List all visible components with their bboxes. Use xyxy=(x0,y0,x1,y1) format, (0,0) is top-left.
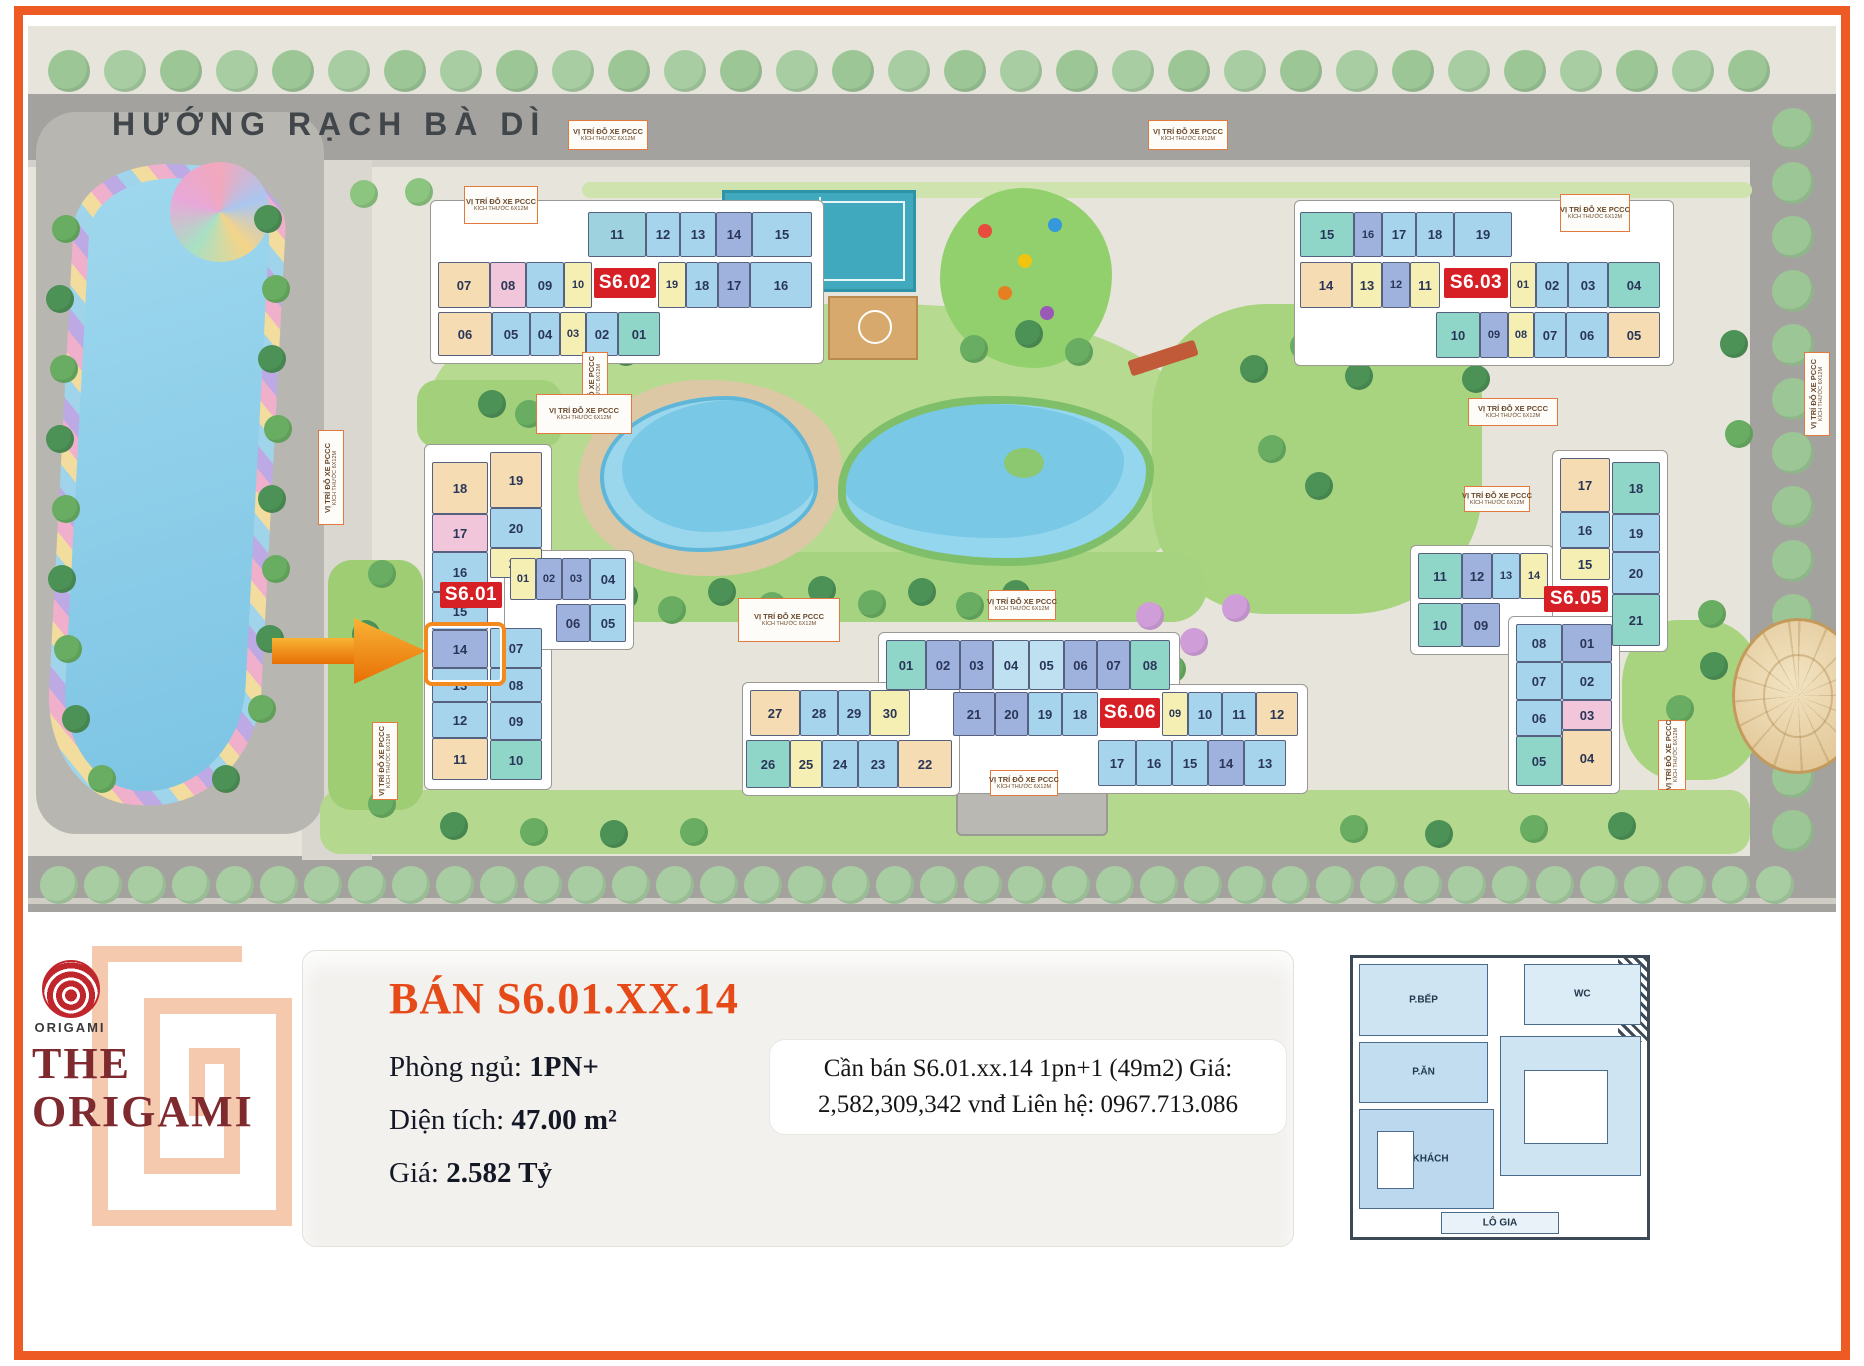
unit-cell-S6.05-19[interactable]: 19 xyxy=(1612,514,1660,552)
park-tree xyxy=(600,820,628,848)
park-tree xyxy=(1698,600,1726,628)
street-tree xyxy=(944,50,986,92)
street-tree xyxy=(1624,866,1662,904)
listing-fields: Phòng ngủ: 1PN+ Diện tích: 47.00 m² Giá:… xyxy=(389,1051,617,1210)
unit-cell-S6.05-13[interactable]: 13 xyxy=(1492,553,1520,599)
lake-water xyxy=(60,174,272,797)
unit-cell-S6.01-04[interactable]: 04 xyxy=(590,558,626,600)
park-tree xyxy=(1425,820,1453,848)
unit-cell-S6.06-30[interactable]: 30 xyxy=(870,690,910,736)
pccc-parking-label: VỊ TRÍ ĐỖ XE PCCCKÍCH THƯỚC 6X12M xyxy=(466,197,536,213)
callout-line1: Cần bán S6.01.xx.14 1pn+1 (49m2) Giá: xyxy=(824,1051,1233,1087)
street-tree xyxy=(496,50,538,92)
unit-cell-S6.01-09[interactable]: 09 xyxy=(490,702,542,740)
street-tree xyxy=(1756,866,1794,904)
street-tree xyxy=(1772,162,1814,204)
street-tree xyxy=(552,50,594,92)
unit-cell-S6.06-01[interactable]: 01 xyxy=(886,640,926,690)
street-tree xyxy=(832,50,874,92)
street-tree xyxy=(612,866,650,904)
street-tree xyxy=(1772,540,1814,582)
unit-cell-S6.02-04[interactable]: 04 xyxy=(530,312,560,356)
pccc-parking-label: VỊ TRÍ ĐỖ XE PCCCKÍCH THƯỚC 6X12M xyxy=(987,597,1057,613)
playground-equipment xyxy=(1048,218,1062,232)
park-tree xyxy=(1065,338,1093,366)
park-tree xyxy=(1136,602,1164,630)
street-tree xyxy=(568,866,606,904)
street-tree xyxy=(216,50,258,92)
playground-equipment xyxy=(998,286,1012,300)
unit-cell-S6.06-18[interactable]: 18 xyxy=(1062,692,1098,736)
unit-cell-S6.05-11[interactable]: 11 xyxy=(1418,553,1462,599)
unit-cell-S6.03-15[interactable]: 15 xyxy=(1300,212,1354,257)
street-tree xyxy=(1280,50,1322,92)
unit-cell-S6.06-11[interactable]: 11 xyxy=(1222,692,1256,736)
unit-cell-S6.03-11[interactable]: 11 xyxy=(1410,262,1440,308)
unit-floor-plan: P.BẾP WC P.ĂN P.NGỦ P.KHÁCH LÔ GIA xyxy=(1350,955,1650,1240)
lagoon-green-rim xyxy=(838,396,1154,566)
street-tree xyxy=(440,50,482,92)
unit-cell-S6.05-07[interactable]: 07 xyxy=(1516,662,1562,700)
park-tree xyxy=(52,215,80,243)
unit-cell-S6.03-06[interactable]: 06 xyxy=(1566,312,1608,358)
park-tree xyxy=(960,335,988,363)
park-tree xyxy=(254,205,282,233)
unit-cell-S6.06-27[interactable]: 27 xyxy=(750,690,800,736)
pccc-parking-box: VỊ TRÍ ĐỖ XE PCCCKÍCH THƯỚC 6X12M xyxy=(1148,120,1228,150)
street-tree xyxy=(1140,866,1178,904)
pccc-parking-box: VỊ TRÍ ĐỖ XE PCCCKÍCH THƯỚC 6X12M xyxy=(1658,720,1686,790)
listing-panel: BÁN S6.01.XX.14 Phòng ngủ: 1PN+ Diện tíc… xyxy=(302,950,1294,1247)
park-tree xyxy=(50,355,78,383)
street-tree xyxy=(1712,866,1750,904)
street-tree xyxy=(1668,866,1706,904)
pccc-parking-label: VỊ TRÍ ĐỖ XE PCCCKÍCH THƯỚC 6X12M xyxy=(1560,205,1630,221)
unit-cell-S6.06-28[interactable]: 28 xyxy=(800,690,838,736)
street-tree xyxy=(1772,108,1814,150)
street-tree xyxy=(128,866,166,904)
park-tree xyxy=(52,495,80,523)
unit-cell-S6.06-02[interactable]: 02 xyxy=(926,640,960,690)
street-tree xyxy=(1000,50,1042,92)
unit-cell-S6.05-06[interactable]: 06 xyxy=(1516,700,1562,736)
unit-cell-S6.01-10[interactable]: 10 xyxy=(490,740,542,780)
unit-cell-S6.06-16[interactable]: 16 xyxy=(1136,740,1172,786)
street-tree xyxy=(260,866,298,904)
unit-cell-S6.06-22[interactable]: 22 xyxy=(898,740,952,788)
street-tree xyxy=(920,866,958,904)
street-tree xyxy=(1448,50,1490,92)
unit-cell-S6.05-03[interactable]: 03 xyxy=(1562,700,1612,730)
unit-cell-S6.02-19[interactable]: 19 xyxy=(658,262,686,308)
unit-cell-S6.02-09[interactable]: 09 xyxy=(526,262,564,308)
unit-cell-S6.05-10[interactable]: 10 xyxy=(1418,603,1462,647)
street-tree xyxy=(788,866,826,904)
street-tree xyxy=(480,866,518,904)
unit-cell-S6.06-04[interactable]: 04 xyxy=(993,640,1029,690)
unit-cell-S6.06-21[interactable]: 21 xyxy=(953,692,995,736)
unit-cell-S6.05-16[interactable]: 16 xyxy=(1560,512,1610,548)
unit-cell-S6.06-24[interactable]: 24 xyxy=(822,740,858,788)
park-tree xyxy=(440,812,468,840)
unit-cell-S6.06-07[interactable]: 07 xyxy=(1097,640,1130,690)
logo-line-origami: ORIGAMI xyxy=(32,1088,254,1136)
street-tree xyxy=(1052,866,1090,904)
pccc-parking-label: VỊ TRÍ ĐỖ XE PCCCKÍCH THƯỚC 6X12M xyxy=(323,442,339,512)
pccc-parking-label: VỊ TRÍ ĐỖ XE PCCCKÍCH THƯỚC 6X12M xyxy=(1478,404,1548,420)
street-tree xyxy=(1772,216,1814,258)
unit-cell-S6.06-09[interactable]: 09 xyxy=(1162,692,1188,736)
street-tree xyxy=(40,866,78,904)
unit-cell-S6.02-15[interactable]: 15 xyxy=(752,212,812,257)
unit-cell-S6.06-14[interactable]: 14 xyxy=(1208,740,1244,786)
pccc-parking-label: VỊ TRÍ ĐỖ XE PCCCKÍCH THƯỚC 6X12M xyxy=(754,612,824,628)
street-tree xyxy=(1008,866,1046,904)
unit-cell-S6.01-17[interactable]: 17 xyxy=(432,514,488,552)
street-tree xyxy=(392,866,430,904)
unit-cell-S6.06-12[interactable]: 12 xyxy=(1256,692,1298,736)
unit-cell-S6.03-17[interactable]: 17 xyxy=(1382,212,1416,257)
unit-cell-S6.05-15[interactable]: 15 xyxy=(1560,548,1610,580)
room-balcony-label: LÔ GIA xyxy=(1483,1218,1517,1229)
unit-cell-S6.02-11[interactable]: 11 xyxy=(588,212,646,257)
street-tree xyxy=(384,50,426,92)
field-area: Diện tích: 47.00 m² xyxy=(389,1104,617,1137)
street-tree xyxy=(1536,866,1574,904)
unit-cell-S6.06-13[interactable]: 13 xyxy=(1244,740,1286,786)
unit-cell-S6.02-06[interactable]: 06 xyxy=(438,312,492,356)
pccc-parking-box: VỊ TRÍ ĐỖ XE PCCCKÍCH THƯỚC 6X12M xyxy=(536,394,632,434)
unit-cell-S6.03-02[interactable]: 02 xyxy=(1536,262,1568,308)
unit-cell-S6.05-04[interactable]: 04 xyxy=(1562,730,1612,786)
street-tree xyxy=(48,50,90,92)
origami-circle-icon xyxy=(42,960,100,1018)
pccc-parking-box: VỊ TRÍ ĐỖ XE PCCCKÍCH THƯỚC 6X12M xyxy=(1804,352,1830,436)
park-tree xyxy=(520,818,548,846)
unit-cell-S6.02-16[interactable]: 16 xyxy=(750,262,812,308)
park-tree xyxy=(1305,472,1333,500)
bed-icon xyxy=(1524,1070,1608,1145)
street-tree xyxy=(744,866,782,904)
playground-equipment xyxy=(1040,306,1054,320)
street-tree xyxy=(1448,866,1486,904)
street-tree xyxy=(1580,866,1618,904)
park-tree xyxy=(1520,815,1548,843)
park-tree xyxy=(478,390,506,418)
pccc-parking-box: VỊ TRÍ ĐỖ XE PCCCKÍCH THƯỚC 6X12M xyxy=(738,598,840,642)
unit-cell-S6.03-10[interactable]: 10 xyxy=(1436,312,1480,358)
unit-cell-S6.03-07[interactable]: 07 xyxy=(1534,312,1566,358)
unit-cell-S6.02-05[interactable]: 05 xyxy=(492,312,530,356)
pccc-parking-box: VỊ TRÍ ĐỖ XE PCCCKÍCH THƯỚC 6X12M xyxy=(990,770,1058,796)
street-tree xyxy=(1772,432,1814,474)
room-dining: P.ĂN xyxy=(1359,1042,1488,1103)
site-plan-map: HƯỚNG RẠCH BÀ DÌ 11121314 xyxy=(28,26,1836,938)
unit-cell-S6.06-15[interactable]: 15 xyxy=(1172,740,1208,786)
unit-cell-S6.01-18[interactable]: 18 xyxy=(432,462,488,514)
unit-cell-S6.02-08[interactable]: 08 xyxy=(490,262,526,308)
field-bedrooms-value: 1PN+ xyxy=(529,1051,599,1083)
sofa-icon xyxy=(1377,1131,1414,1189)
unit-cell-S6.02-12[interactable]: 12 xyxy=(646,212,680,257)
street-tree xyxy=(664,50,706,92)
unit-cell-S6.01-20[interactable]: 20 xyxy=(490,508,542,548)
unit-cell-S6.01-06[interactable]: 06 xyxy=(556,604,590,642)
unit-cell-S6.02-14[interactable]: 14 xyxy=(716,212,752,257)
field-price-value: 2.582 Tỷ xyxy=(446,1157,552,1189)
street-tree xyxy=(1392,50,1434,92)
park-tree xyxy=(264,415,292,443)
pccc-parking-label: VỊ TRÍ ĐỖ XE PCCCKÍCH THƯỚC 6X12M xyxy=(549,406,619,422)
park-tree xyxy=(368,560,396,588)
room-balcony: LÔ GIA xyxy=(1441,1212,1559,1234)
street-tree xyxy=(1404,866,1442,904)
park-tree xyxy=(1015,320,1043,348)
unit-cell-S6.02-07[interactable]: 07 xyxy=(438,262,490,308)
unit-cell-S6.05-05[interactable]: 05 xyxy=(1516,736,1562,786)
pointer-arrow xyxy=(272,638,366,664)
unit-cell-S6.06-06[interactable]: 06 xyxy=(1064,640,1097,690)
pccc-parking-box: VỊ TRÍ ĐỖ XE PCCCKÍCH THƯỚC 6X12M xyxy=(318,430,344,525)
park-tree xyxy=(1462,365,1490,393)
unit-cell-S6.05-20[interactable]: 20 xyxy=(1612,552,1660,594)
callout-line2: 2,582,309,342 vnđ Liên hệ: 0967.713.086 xyxy=(818,1087,1238,1123)
unit-cell-S6.02-02[interactable]: 02 xyxy=(586,312,618,356)
park-tree xyxy=(956,592,984,620)
logo-line-the: THE xyxy=(32,1040,254,1088)
unit-cell-S6.01-05[interactable]: 05 xyxy=(590,604,626,642)
room-dining-label: P.ĂN xyxy=(1412,1067,1435,1078)
unit-cell-S6.05-18[interactable]: 18 xyxy=(1612,462,1660,514)
park-tree xyxy=(212,765,240,793)
park-tree xyxy=(54,635,82,663)
pccc-parking-box: VỊ TRÍ ĐỖ XE PCCCKÍCH THƯỚC 6X12M xyxy=(464,186,538,224)
unit-cell-S6.02-10[interactable]: 10 xyxy=(564,262,592,308)
unit-cell-S6.03-16[interactable]: 16 xyxy=(1354,212,1382,257)
park-tree xyxy=(350,180,378,208)
unit-cell-S6.05-21[interactable]: 21 xyxy=(1612,594,1660,646)
contact-callout: Cần bán S6.01.xx.14 1pn+1 (49m2) Giá: 2,… xyxy=(769,1039,1287,1135)
unit-cell-S6.03-01[interactable]: 01 xyxy=(1510,262,1536,308)
street-tree xyxy=(84,866,122,904)
park-tree xyxy=(1180,628,1208,656)
park-tree xyxy=(1700,652,1728,680)
field-bedrooms: Phòng ngủ: 1PN+ xyxy=(389,1051,617,1084)
street-tree xyxy=(348,866,386,904)
park-tree xyxy=(858,590,886,618)
unit-cell-S6.03-08[interactable]: 08 xyxy=(1508,312,1534,358)
park-tree xyxy=(48,565,76,593)
street-tree xyxy=(1316,866,1354,904)
unit-cell-S6.01-12[interactable]: 12 xyxy=(432,702,488,738)
unit-cell-S6.06-10[interactable]: 10 xyxy=(1188,692,1222,736)
screenshot-root: HƯỚNG RẠCH BÀ DÌ 11121314 xyxy=(0,0,1864,1366)
street-tree xyxy=(888,50,930,92)
unit-cell-S6.05-17[interactable]: 17 xyxy=(1560,458,1610,512)
street-tree xyxy=(1228,866,1266,904)
pccc-parking-box: VỊ TRÍ ĐỖ XE PCCCKÍCH THƯỚC 6X12M xyxy=(1468,398,1558,426)
unit-cell-S6.03-12[interactable]: 12 xyxy=(1382,262,1410,308)
park-tree xyxy=(258,485,286,513)
street-tree xyxy=(700,866,738,904)
park-tree xyxy=(1345,362,1373,390)
unit-cell-S6.06-17[interactable]: 17 xyxy=(1098,740,1136,786)
park-tree xyxy=(46,285,74,313)
pccc-parking-label: VỊ TRÍ ĐỖ XE PCCCKÍCH THƯỚC 6X12M xyxy=(1462,491,1532,507)
pccc-parking-label: VỊ TRÍ ĐỖ XE PCCCKÍCH THƯỚC 6X12M xyxy=(1809,359,1825,429)
unit-cell-S6.06-03[interactable]: 03 xyxy=(960,640,993,690)
street-tree xyxy=(104,50,146,92)
pccc-parking-box: VỊ TRÍ ĐỖ XE PCCCKÍCH THƯỚC 6X12M xyxy=(1464,486,1530,512)
building-label-S6.06: S6.06 xyxy=(1100,698,1160,728)
unit-cell-S6.03-04[interactable]: 04 xyxy=(1608,262,1660,308)
park-tree xyxy=(248,695,276,723)
unit-cell-S6.06-29[interactable]: 29 xyxy=(838,690,870,736)
logo-wordmark: THE ORIGAMI xyxy=(32,1040,254,1135)
listing-title: BÁN S6.01.XX.14 xyxy=(389,973,739,1024)
street-tree xyxy=(1096,866,1134,904)
unit-cell-S6.03-18[interactable]: 18 xyxy=(1416,212,1454,257)
park-tree xyxy=(46,425,74,453)
street-tree xyxy=(1504,50,1546,92)
unit-cell-S6.05-09[interactable]: 09 xyxy=(1462,603,1500,647)
street-tree xyxy=(1560,50,1602,92)
unit-cell-S6.06-05[interactable]: 05 xyxy=(1029,640,1064,690)
unit-cell-S6.06-20[interactable]: 20 xyxy=(995,692,1028,736)
street-tree xyxy=(608,50,650,92)
unit-cell-S6.02-01[interactable]: 01 xyxy=(618,312,660,356)
street-tree xyxy=(1360,866,1398,904)
room-kitchen-label: P.BẾP xyxy=(1409,994,1438,1005)
building-label-S6.05: S6.05 xyxy=(1544,586,1608,612)
room-wc: WC xyxy=(1524,964,1642,1025)
street-tree xyxy=(1184,866,1222,904)
street-tree xyxy=(720,50,762,92)
pccc-parking-box: VỊ TRÍ ĐỖ XE PCCCKÍCH THƯỚC 6X12M xyxy=(568,120,648,150)
unit-cell-S6.03-14[interactable]: 14 xyxy=(1300,262,1352,308)
unit-cell-S6.02-13[interactable]: 13 xyxy=(680,212,716,257)
unit-cell-S6.05-02[interactable]: 02 xyxy=(1562,662,1612,700)
playground-equipment xyxy=(978,224,992,238)
park-tree xyxy=(1608,812,1636,840)
room-kitchen: P.BẾP xyxy=(1359,964,1488,1037)
logo-small-label: ORIGAMI xyxy=(18,1020,122,1035)
unit-cell-S6.01-19[interactable]: 19 xyxy=(490,452,542,508)
street-tree xyxy=(1224,50,1266,92)
street-tree xyxy=(1672,50,1714,92)
street-tree xyxy=(216,866,254,904)
street-tree xyxy=(1272,866,1310,904)
unit-cell-S6.01-03[interactable]: 03 xyxy=(562,558,590,600)
unit-cell-S6.01-02[interactable]: 02 xyxy=(536,558,562,600)
pccc-parking-label: VỊ TRÍ ĐỖ XE PCCCKÍCH THƯỚC 6X12M xyxy=(989,775,1059,791)
street-tree xyxy=(1772,270,1814,312)
park-tree xyxy=(1340,815,1368,843)
park-tree xyxy=(1222,594,1250,622)
playground-equipment xyxy=(1018,254,1032,268)
unit-cell-S6.02-17[interactable]: 17 xyxy=(718,262,750,308)
unit-cell-S6.02-03[interactable]: 03 xyxy=(560,312,586,356)
park-tree xyxy=(405,178,433,206)
unit-cell-S6.03-03[interactable]: 03 xyxy=(1568,262,1608,308)
park-tree xyxy=(1240,355,1268,383)
unit-cell-S6.05-08[interactable]: 08 xyxy=(1516,624,1562,662)
street-tree xyxy=(436,866,474,904)
building-label-S6.02: S6.02 xyxy=(594,268,656,298)
pccc-parking-box: VỊ TRÍ ĐỖ XE PCCCKÍCH THƯỚC 6X12M xyxy=(372,722,398,800)
park-tree xyxy=(680,818,708,846)
lagoon-island xyxy=(1004,448,1044,478)
building-label-S6.01: S6.01 xyxy=(440,582,502,608)
park-tree xyxy=(262,555,290,583)
street-tree xyxy=(524,866,562,904)
unit-cell-S6.01-11[interactable]: 11 xyxy=(432,738,488,780)
park-tree xyxy=(258,345,286,373)
unit-cell-S6.03-09[interactable]: 09 xyxy=(1480,312,1508,358)
park-tree xyxy=(88,765,116,793)
park-tree xyxy=(262,275,290,303)
unit-cell-S6.06-08[interactable]: 08 xyxy=(1130,640,1170,690)
unit-cell-S6.02-18[interactable]: 18 xyxy=(686,262,718,308)
unit-cell-S6.03-05[interactable]: 05 xyxy=(1608,312,1660,358)
park-tree xyxy=(658,596,686,624)
street-tree xyxy=(1772,810,1814,852)
unit-cell-S6.01-01[interactable]: 01 xyxy=(510,558,536,600)
unit-cell-S6.06-26[interactable]: 26 xyxy=(746,740,790,788)
street-tree xyxy=(1168,50,1210,92)
map-title: HƯỚNG RẠCH BÀ DÌ xyxy=(112,106,546,143)
field-price: Giá: 2.582 Tỷ xyxy=(389,1157,617,1190)
room-wc-label: WC xyxy=(1574,989,1591,1000)
pccc-parking-box: VỊ TRÍ ĐỖ XE PCCCKÍCH THƯỚC 6X12M xyxy=(988,590,1056,620)
unit-cell-S6.05-01[interactable]: 01 xyxy=(1562,624,1612,662)
unit-cell-S6.06-19[interactable]: 19 xyxy=(1028,692,1062,736)
street-tree xyxy=(328,50,370,92)
park-tree xyxy=(1720,330,1748,358)
lagoon-east xyxy=(846,404,1146,558)
street-tree xyxy=(1728,50,1770,92)
unit-cell-S6.03-19[interactable]: 19 xyxy=(1454,212,1512,257)
street-tree xyxy=(876,866,914,904)
listing-info-section: ORIGAMI THE ORIGAMI BÁN S6.01.XX.14 Phòn… xyxy=(0,912,1864,1366)
street-tree xyxy=(304,866,342,904)
basketball-court xyxy=(828,296,918,360)
street-tree xyxy=(832,866,870,904)
street-tree xyxy=(1492,866,1530,904)
street-tree xyxy=(1616,50,1658,92)
unit-cell-S6.05-12[interactable]: 12 xyxy=(1462,553,1492,599)
street-tree xyxy=(160,50,202,92)
street-tree xyxy=(964,866,1002,904)
highlighted-unit-ring xyxy=(424,622,506,686)
street-tree xyxy=(1772,486,1814,528)
field-bedrooms-label: Phòng ngủ: xyxy=(389,1051,529,1083)
park-tree xyxy=(62,705,90,733)
unit-cell-S6.03-13[interactable]: 13 xyxy=(1352,262,1382,308)
pccc-parking-label: VỊ TRÍ ĐỖ XE PCCCKÍCH THƯỚC 6X12M xyxy=(573,127,643,143)
street-tree xyxy=(1336,50,1378,92)
field-price-label: Giá: xyxy=(389,1157,446,1189)
street-tree xyxy=(776,50,818,92)
street-tree xyxy=(172,866,210,904)
pccc-parking-label: VỊ TRÍ ĐỖ XE PCCCKÍCH THƯỚC 6X12M xyxy=(377,726,393,796)
street-tree xyxy=(1056,50,1098,92)
building-label-S6.03: S6.03 xyxy=(1444,268,1508,298)
field-area-value: 47.00 m² xyxy=(511,1104,616,1136)
field-area-label: Diện tích: xyxy=(389,1104,511,1136)
unit-cell-S6.06-25[interactable]: 25 xyxy=(790,740,822,788)
unit-cell-S6.06-23[interactable]: 23 xyxy=(858,740,898,788)
